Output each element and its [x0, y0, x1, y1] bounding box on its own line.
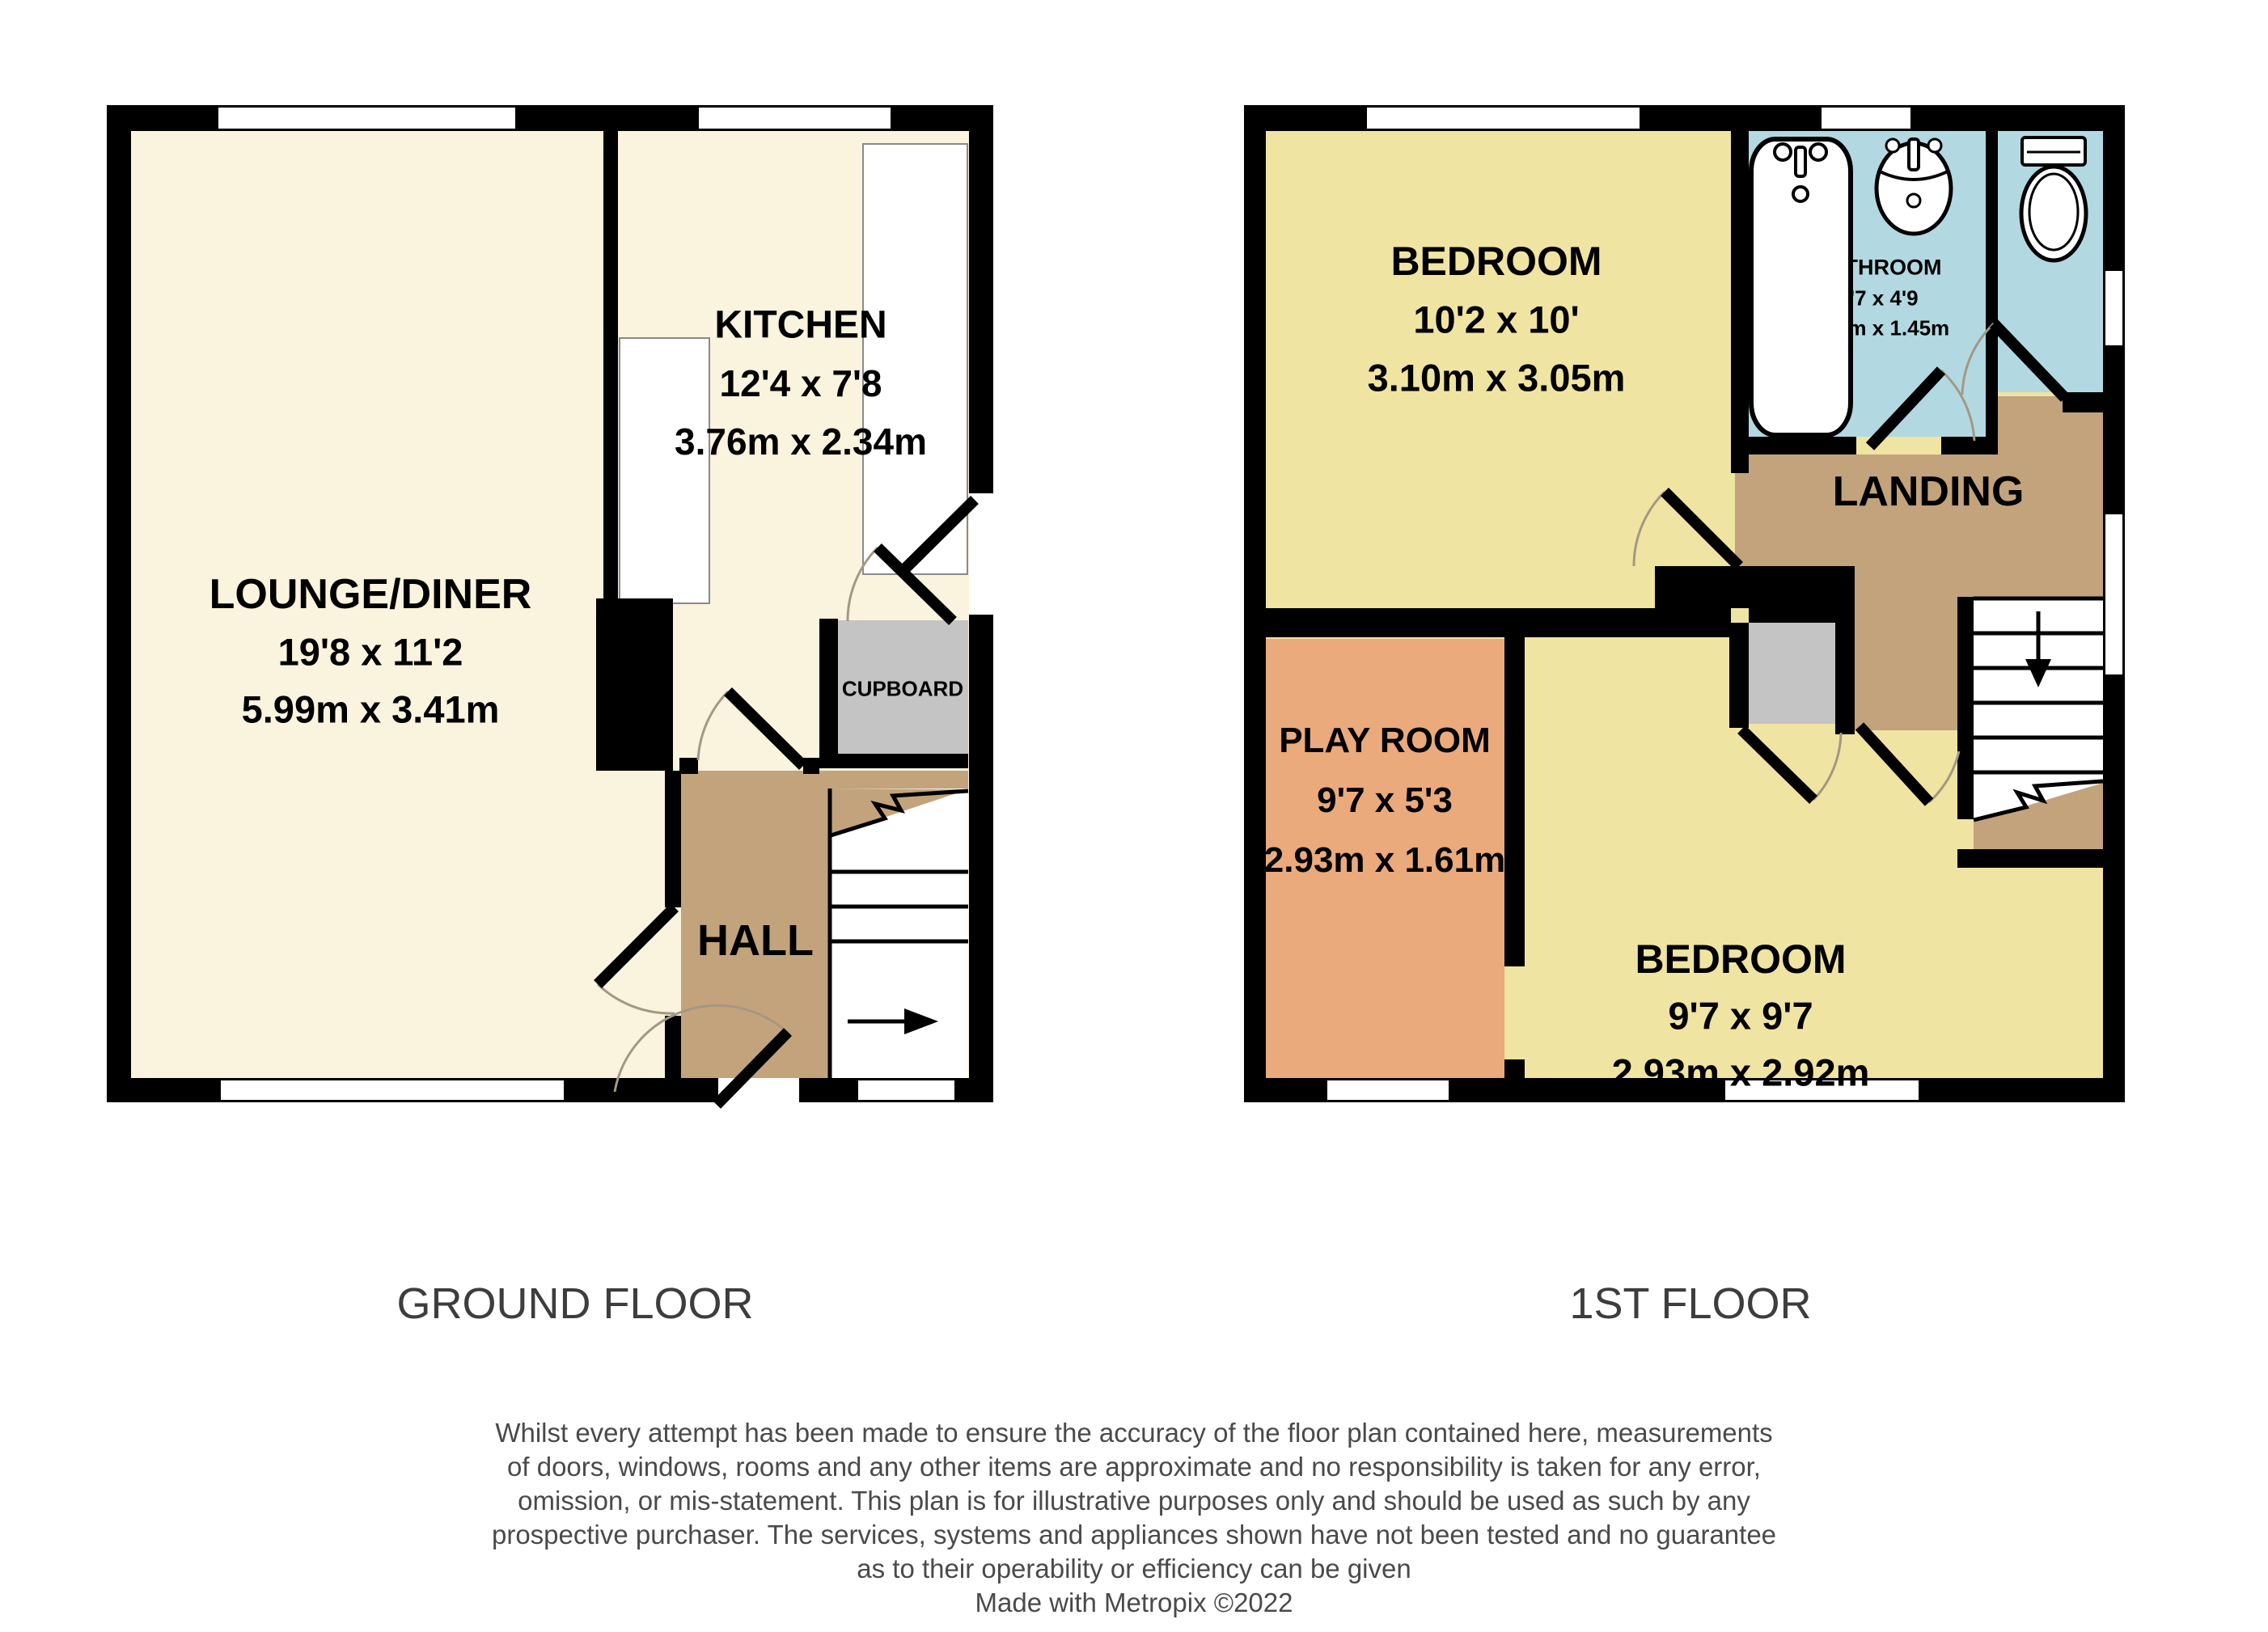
ff-wall-stairs-left	[1957, 597, 1974, 819]
first-floor-label: 1ST FLOOR	[1569, 1279, 1811, 1329]
gf-wall-hall-lower	[665, 1016, 681, 1078]
disclaimer-line-5: as to their operability or efficiency ca…	[857, 1554, 1411, 1584]
playroom-dim-metric: 2.93m x 1.61m	[1264, 840, 1505, 881]
hall-window-bottom	[856, 1078, 957, 1102]
bedroom2-name: BEDROOM	[1635, 936, 1846, 983]
lounge-dim-metric: 5.99m x 3.41m	[242, 687, 500, 732]
gf-wall-right-upper	[969, 105, 993, 493]
bedroom2-dim-imperial: 9'7 x 9'7	[1668, 994, 1813, 1038]
gf-wall-right-lower	[969, 615, 993, 1102]
bedroom1-dim-metric: 3.10m x 3.05m	[1368, 356, 1626, 400]
gf-wall-cupboard-left	[819, 619, 838, 768]
airing-cupboard-floor	[1749, 623, 1835, 724]
gf-stairs-area	[828, 789, 968, 1078]
ff-wall-playroom-bedroom2	[1504, 637, 1525, 966]
wc-window-right	[2103, 268, 2125, 348]
ff-wall-cupboard-right	[1835, 608, 1855, 734]
disclaimer-line-1: Whilst every attempt has been made to en…	[495, 1418, 1772, 1448]
lounge-dim-imperial: 19'8 x 11'2	[278, 630, 463, 674]
front-door-opening	[718, 1078, 799, 1102]
landing-window-right	[2103, 512, 2125, 677]
ff-wall-bathroom-bottom-left	[1731, 437, 1856, 455]
ff-wall-wc-bottom	[2063, 392, 2103, 412]
gf-wall-kitchen-bottom-left	[679, 758, 698, 774]
playroom-window-bottom	[1325, 1078, 1451, 1102]
kitchen-dim-metric: 3.76m x 2.34m	[675, 420, 927, 463]
lounge-window-bottom	[218, 1078, 566, 1102]
kitchen-counter-right	[862, 143, 968, 575]
disclaimer-line-3: omission, or mis-statement. This plan is…	[518, 1486, 1750, 1516]
gf-wall-left	[107, 105, 131, 1102]
bathroom-dim-metric: 1.70m x 1.45m	[1807, 316, 1949, 341]
ff-wall-playroom-bedroom2-stub	[1504, 1059, 1525, 1078]
lounge-name: LOUNGE/DINER	[209, 570, 532, 619]
gf-wall-hall-upper	[665, 771, 681, 907]
playroom-dim-imperial: 9'7 x 5'3	[1317, 780, 1453, 821]
kitchen-counter-left	[619, 337, 710, 604]
disclaimer-line-2: of doors, windows, rooms and any other i…	[507, 1452, 1761, 1482]
ff-wall-bathroom-wc	[1986, 131, 1998, 437]
bathroom-name: BATHROOM	[1815, 256, 1942, 281]
ff-wall-bedroom1-right	[1731, 131, 1749, 473]
ff-wall-bathroom-bottom-right	[1941, 437, 1998, 455]
ff-wall-corner-block	[1655, 566, 1749, 608]
gf-wall-cupboard-bottom	[819, 754, 968, 768]
kitchen-dim-imperial: 12'4 x 7'8	[720, 361, 882, 405]
bedroom2-dim-metric: 2.93m x 2.92m	[1612, 1051, 1870, 1095]
ff-wall-left	[1244, 105, 1266, 1102]
ff-wall-bedroom1-bottom	[1244, 608, 1731, 637]
bedroom1-name: BEDROOM	[1390, 238, 1602, 285]
lounge-window-top	[216, 105, 518, 131]
kitchen-name: KITCHEN	[714, 303, 886, 348]
gf-wall-kitchen-bottom-right	[803, 758, 819, 774]
gf-wall-lounge-hall-block	[596, 598, 673, 771]
kitchen-window-top	[696, 105, 893, 131]
floorplan-page: { "colors": { "wall": "#000000", "window…	[0, 0, 2268, 1632]
disclaimer-line-4: prospective purchaser. The services, sys…	[492, 1520, 1776, 1550]
cupboard-name: CUPBOARD	[842, 677, 963, 702]
ff-wall-stairs-bottom	[1957, 849, 2125, 868]
playroom-name: PLAY ROOM	[1279, 721, 1491, 761]
bedroom1-window-top	[1365, 105, 1642, 131]
ground-floor-label: GROUND FLOOR	[396, 1279, 753, 1329]
bedroom1-dim-imperial: 10'2 x 10'	[1413, 298, 1579, 342]
made-with-metropix: Made with Metropix ©2022	[975, 1588, 1293, 1618]
bathroom-window-top	[1819, 105, 1913, 131]
bathroom-floor	[1749, 131, 1986, 437]
landing-name: LANDING	[1833, 467, 2025, 516]
landing-floor-corridor	[1855, 602, 1963, 730]
bathroom-dim-imperial: 5'7 x 4'9	[1838, 286, 1918, 311]
ff-stairs-area	[1974, 597, 2103, 821]
gf-wall-kitchen-lounge	[603, 131, 618, 602]
ff-wall-cupboard-left	[1729, 623, 1749, 728]
wc-floor	[1998, 131, 2103, 392]
hall-name: HALL	[697, 915, 814, 966]
